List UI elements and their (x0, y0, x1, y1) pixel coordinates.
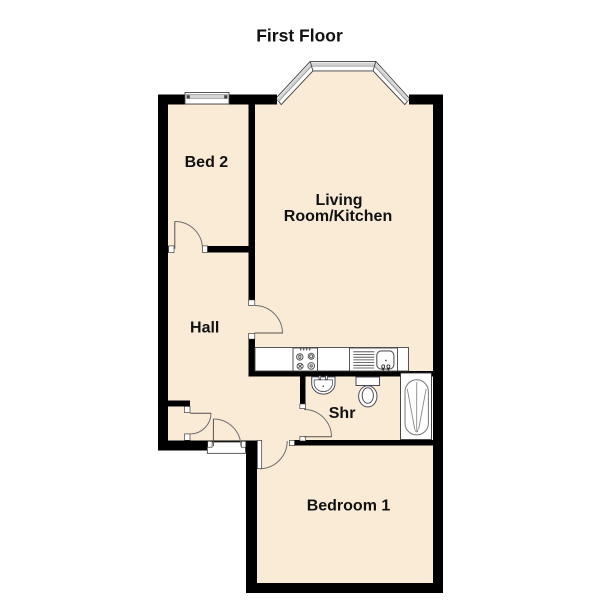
svg-text:Shr: Shr (329, 405, 356, 422)
svg-text:First Floor: First Floor (256, 26, 343, 46)
svg-text:Bed 2: Bed 2 (185, 154, 229, 171)
svg-text:Hall: Hall (190, 320, 219, 337)
svg-text:Living: Living (315, 192, 362, 209)
svg-text:Room/Kitchen: Room/Kitchen (284, 208, 392, 225)
svg-text:Bedroom 1: Bedroom 1 (307, 498, 391, 515)
